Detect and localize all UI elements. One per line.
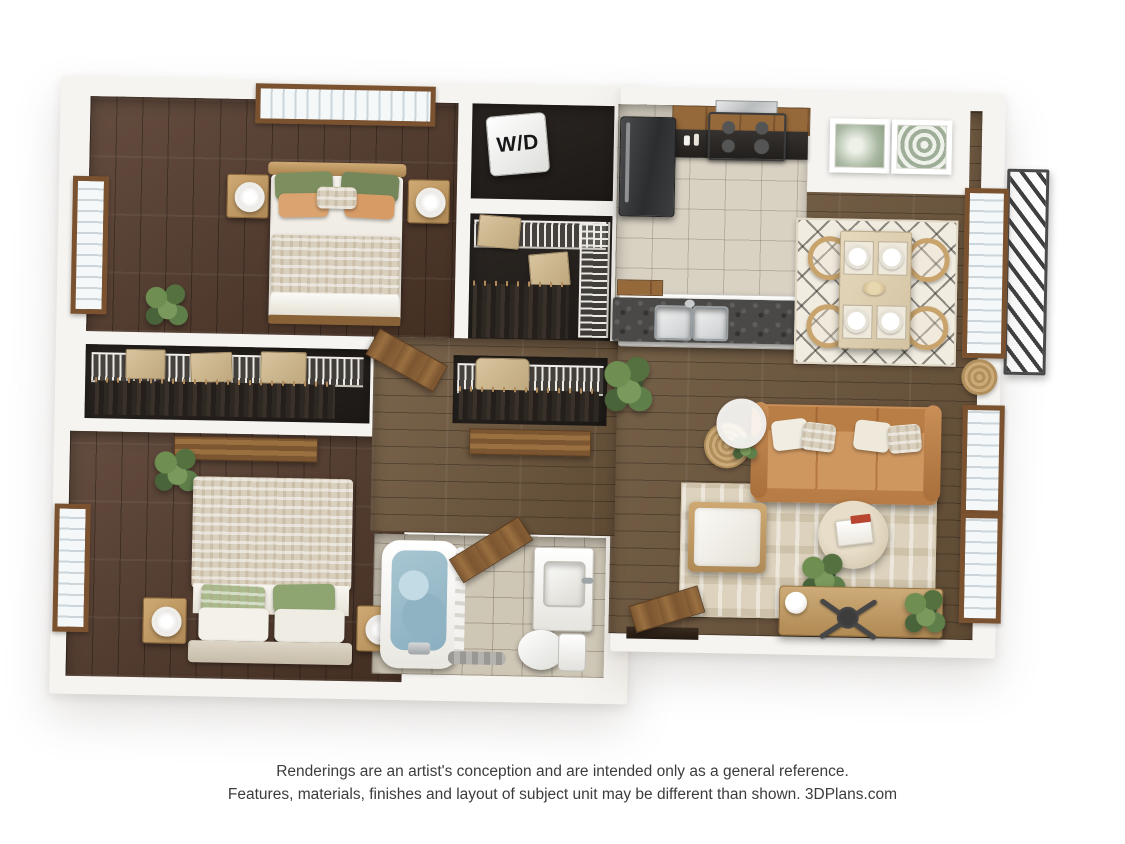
vanity-sink — [543, 561, 586, 608]
bath-mat — [448, 651, 506, 665]
floor-plan: W/D — [49, 76, 1056, 713]
bed1-folded-sheet — [270, 293, 398, 317]
walkin-hanging-clothes — [472, 283, 569, 339]
closet1-hanging-clothes — [95, 380, 336, 419]
disclaimer-line-1: Renderings are an artist's conception an… — [0, 760, 1125, 783]
walkin-box-1 — [477, 214, 522, 250]
closet1-box-1 — [125, 349, 166, 380]
hall-closet-door — [469, 428, 591, 456]
kitchen-sink-left — [654, 305, 693, 341]
toilet-tank — [558, 633, 587, 672]
bed2-pillow-white-right — [274, 609, 345, 643]
sofa-arm-right — [923, 405, 942, 501]
closet1-box-3 — [260, 351, 307, 384]
hallway-plant — [600, 348, 655, 423]
right-window-lower — [959, 513, 1003, 624]
washer-dryer-unit: W/D — [485, 112, 550, 177]
washer-dryer-label: W/D — [496, 131, 540, 159]
walkin-wire-shelf-right — [578, 222, 610, 339]
tub-faucet — [408, 642, 430, 654]
hall-closet-clothes — [458, 389, 599, 422]
bedroom2-side-window — [52, 503, 90, 632]
sofa-pillow-3 — [853, 419, 892, 453]
vanity-faucet — [581, 578, 593, 584]
right-window-middle — [961, 405, 1005, 516]
bed1-accent-pillow — [317, 186, 357, 209]
disclaimer: Renderings are an artist's conception an… — [0, 760, 1125, 806]
bathtub-water — [390, 550, 448, 651]
armchair-cushion — [694, 508, 761, 567]
bed2-headboard — [188, 640, 352, 665]
right-window-upper — [962, 188, 1009, 359]
counter-bottle-2 — [694, 134, 699, 146]
counter-bottle-1 — [684, 135, 690, 145]
bedroom1-picture-window — [255, 83, 436, 126]
wall-art-left — [829, 118, 890, 173]
sofa-pillow-2 — [801, 421, 837, 453]
disclaimer-line-2: Features, materials, finishes and layout… — [0, 783, 1125, 806]
kitchen-faucet — [685, 300, 695, 308]
range-cooktop — [708, 112, 787, 161]
balcony-railing — [1003, 169, 1049, 376]
kitchen-side-cabinet — [617, 279, 663, 296]
table-centerpiece — [863, 281, 885, 295]
bedroom1-side-window — [70, 176, 109, 315]
wall-art-right — [891, 119, 952, 174]
bed2-duvet — [191, 476, 353, 591]
bed2-pillow-white-left — [198, 607, 269, 641]
kitchen-sink-right — [692, 306, 729, 342]
bed1-blanket — [271, 235, 400, 297]
sofa-pillow-4 — [887, 423, 922, 454]
